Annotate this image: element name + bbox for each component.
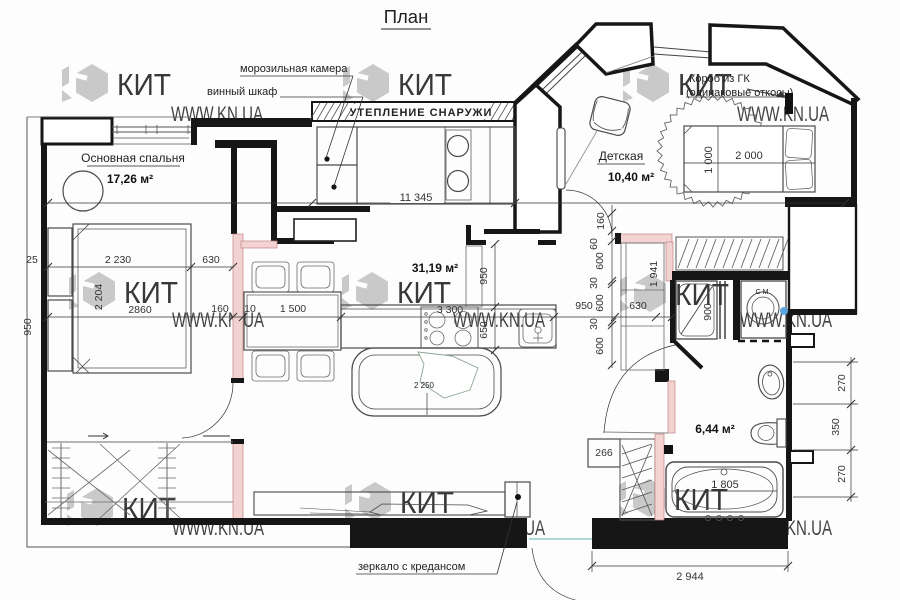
svg-text:2860: 2860 bbox=[128, 304, 152, 316]
svg-text:2 000: 2 000 bbox=[735, 150, 763, 162]
svg-text:600: 600 bbox=[594, 337, 606, 355]
svg-text:630: 630 bbox=[202, 254, 220, 266]
svg-text:900: 900 bbox=[702, 303, 714, 321]
svg-text:30: 30 bbox=[588, 277, 600, 289]
svg-text:270: 270 bbox=[836, 374, 848, 392]
svg-text:винный шкаф: винный шкаф bbox=[207, 86, 277, 98]
svg-text:600: 600 bbox=[594, 252, 606, 270]
svg-text:31,19 м²: 31,19 м² bbox=[412, 261, 458, 275]
svg-text:План: План bbox=[384, 6, 429, 27]
svg-text:1 000: 1 000 bbox=[703, 146, 715, 174]
svg-text:950: 950 bbox=[22, 318, 34, 336]
svg-text:160: 160 bbox=[211, 303, 229, 315]
svg-text:2 230: 2 230 bbox=[105, 254, 131, 266]
svg-text:1 500: 1 500 bbox=[280, 303, 306, 315]
svg-text:25: 25 bbox=[26, 254, 38, 266]
svg-text:Короб из ГК: Короб из ГК bbox=[689, 73, 750, 85]
svg-text:10,40 м²: 10,40 м² bbox=[608, 170, 654, 184]
svg-text:950: 950 bbox=[575, 300, 593, 312]
svg-text:УТЕПЛЕНИЕ СНАРУЖИ: УТЕПЛЕНИЕ СНАРУЖИ bbox=[350, 107, 493, 119]
svg-text:950: 950 bbox=[478, 267, 490, 285]
svg-text:2 204: 2 204 bbox=[93, 284, 105, 310]
svg-text:10: 10 bbox=[244, 303, 256, 315]
svg-text:630: 630 bbox=[629, 300, 647, 312]
svg-text:600: 600 bbox=[594, 294, 606, 312]
svg-text:зеркало с кредансом: зеркало с кредансом bbox=[358, 561, 465, 573]
svg-text:1 941: 1 941 bbox=[648, 261, 660, 287]
svg-text:350: 350 bbox=[830, 418, 842, 436]
svg-text:270: 270 bbox=[836, 465, 848, 483]
svg-text:Детская: Детская bbox=[599, 149, 643, 163]
svg-text:30: 30 bbox=[588, 318, 600, 330]
svg-text:650: 650 bbox=[478, 321, 490, 339]
svg-text:СМ: СМ bbox=[756, 289, 771, 296]
svg-text:60: 60 bbox=[588, 238, 600, 250]
svg-text:2 250: 2 250 bbox=[414, 381, 435, 390]
svg-text:266: 266 bbox=[595, 447, 613, 459]
svg-text:2 944: 2 944 bbox=[676, 571, 704, 583]
svg-text:17,26 м²: 17,26 м² bbox=[107, 172, 153, 186]
svg-text:11 345: 11 345 bbox=[400, 192, 433, 204]
svg-text:морозильная камера: морозильная камера bbox=[240, 63, 348, 75]
svg-text:1 805: 1 805 bbox=[711, 479, 739, 491]
svg-text:3 300: 3 300 bbox=[437, 304, 463, 316]
svg-text:Основная спальня: Основная спальня bbox=[81, 151, 185, 165]
svg-text:6,44 м²: 6,44 м² bbox=[695, 422, 735, 436]
svg-text:160: 160 bbox=[595, 212, 607, 230]
